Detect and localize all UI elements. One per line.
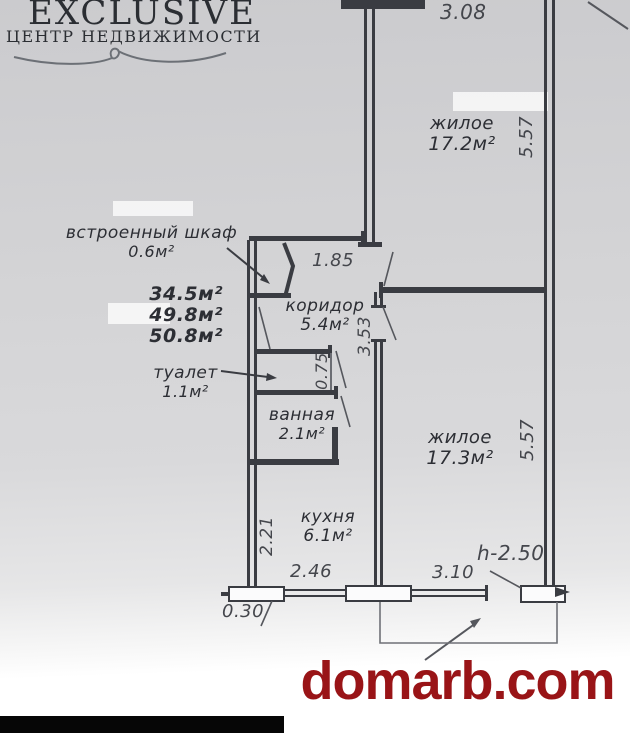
window-sill-kitchen (228, 586, 285, 602)
dim-value: 3.53 (355, 316, 375, 356)
balcony-outline (380, 602, 557, 643)
dim-value: 0.75 (312, 352, 331, 390)
agency-logo-subtitle: ЦЕНТР НЕДВИЖИМОСТИ (6, 27, 262, 46)
dim-toilet-width: 0.75 (311, 343, 331, 399)
radiator-balcony-door (520, 585, 566, 603)
balcony-arrowhead-icon (470, 618, 481, 628)
dim-value: 5.57 (516, 116, 537, 158)
door-swing-living-top (384, 252, 393, 286)
ceiling-height-leader (490, 571, 521, 588)
wall-cap (361, 231, 365, 246)
dim-top-width: 3.08 (440, 0, 487, 24)
room-name: жилое (405, 428, 515, 448)
area-summary-line: 49.8м² (138, 305, 223, 326)
dim-living-top-height: 5.57 (516, 109, 536, 165)
door-swing-toilet (336, 351, 346, 388)
wall-bathroom-bottom (249, 459, 339, 465)
dim-value: 2.21 (257, 516, 277, 556)
wall-corridor-right-b (374, 341, 383, 588)
dim-living-bottom-width: 3.10 (432, 562, 474, 583)
room-area: 1.1м² (138, 383, 233, 401)
wall-cap (334, 386, 338, 399)
dim-wall-offset: 0.30 (222, 601, 264, 622)
wall-cap (221, 592, 229, 596)
window-sill-living (345, 585, 412, 602)
room-area: 17.2м² (407, 134, 517, 155)
door-swing-closet (259, 307, 270, 349)
scanned-floorplan-page: EXCLUSIVE ЦЕНТР НЕДВИЖИМОСТИ (0, 0, 630, 733)
room-label-living-bottom: жилое 17.3м² (405, 428, 515, 469)
area-summary: 34.5м² 49.8м² 50.8м² (138, 284, 223, 347)
bottom-black-bar (0, 716, 284, 733)
dim-closet-width: 1.85 (312, 250, 354, 271)
room-name: туалет (138, 364, 233, 383)
dim-ceiling-height: h-2.50 (477, 541, 544, 565)
room-label-closet: встроенный шкаф 0.6м² (64, 224, 239, 261)
wall-right-outer (544, 0, 555, 588)
room-area: 2.1м² (258, 425, 346, 443)
room-label-bathroom: ванная 2.1м² (258, 406, 346, 443)
wall-corridor-top (249, 236, 363, 241)
closet-arrowhead-icon (260, 274, 270, 284)
watermark-text: domarb.com (285, 650, 630, 712)
flourish-icon (10, 44, 232, 70)
room-area: 0.6м² (64, 243, 239, 261)
wall-top-bar (341, 0, 425, 9)
wall-cap (485, 585, 488, 601)
dim-corridor-height: 3.53 (355, 308, 375, 364)
top-right-diagonal (588, 2, 628, 29)
window-living (412, 589, 485, 597)
room-name: жилое (407, 114, 517, 134)
room-area: 6.1м² (283, 527, 373, 546)
area-summary-line: 50.8м² (138, 326, 223, 347)
room-area: 17.3м² (405, 448, 515, 469)
area-summary-line: 34.5м² (138, 284, 223, 305)
dim-living-bottom-height: 5.57 (517, 412, 537, 468)
door-swing-living-bottom (383, 307, 396, 340)
dim-value: 5.57 (517, 419, 538, 461)
room-label-kitchen: кухня 6.1м² (283, 508, 373, 546)
dim-kitchen-height: 2.21 (257, 508, 277, 564)
room-name: кухня (283, 508, 373, 527)
whiteout-patch (113, 201, 193, 216)
wall-rooms-divider (382, 287, 546, 293)
room-name: встроенный шкаф (64, 224, 239, 243)
wall-closet-diagonal (284, 243, 293, 297)
room-label-toilet: туалет 1.1м² (138, 364, 233, 401)
room-name: ванная (258, 406, 346, 425)
window-kitchen (285, 589, 346, 597)
room-label-living-top: жилое 17.2м² (407, 114, 517, 155)
toilet-arrowhead-icon (266, 373, 277, 381)
wall-living-top-left (364, 7, 375, 243)
dim-kitchen-width: 2.46 (290, 561, 332, 582)
